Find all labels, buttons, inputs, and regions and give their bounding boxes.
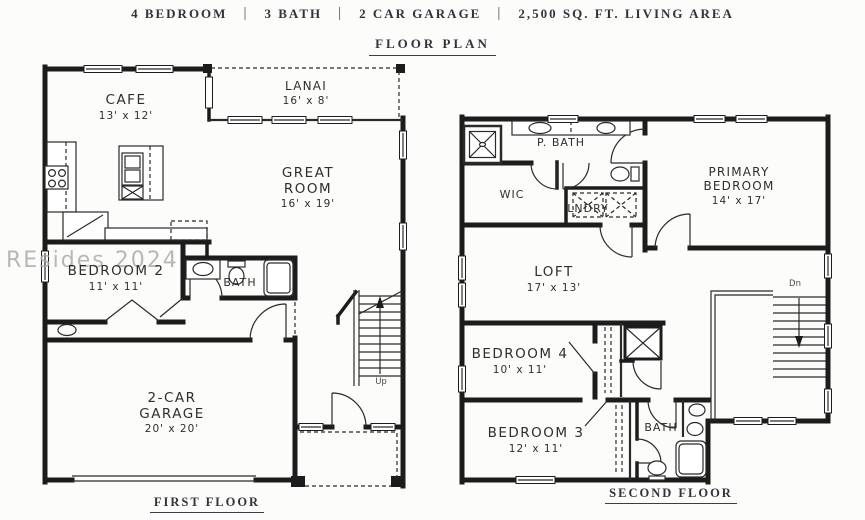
room-name: 2-CAR GARAGE [137, 391, 207, 422]
room-dims: 17' x 13' [527, 282, 581, 294]
second-floor-caption: SECOND FLOOR [596, 486, 746, 504]
room-label-great-room: GREAT ROOM 16' x 19' [276, 166, 340, 210]
first-floor-stairs [354, 290, 402, 386]
room-name: P. BATH [537, 137, 585, 150]
floor-plan-page: 4 BEDROOM | 3 BATH | 2 CAR GARAGE | 2,50… [0, 0, 865, 520]
room-name: LANAI [285, 80, 327, 94]
stairs-dn-label: Dn [785, 280, 805, 290]
room-label-bedroom-2: BEDROOM 2 11' x 11' [61, 264, 171, 293]
room-label-bedroom-3: BEDROOM 3 12' x 11' [481, 426, 591, 455]
room-name: BATH [223, 277, 256, 290]
room-label-garage: 2-CAR GARAGE 20' x 20' [137, 391, 207, 435]
room-name: Up [375, 378, 387, 388]
room-name: GREAT ROOM [276, 166, 340, 197]
room-label-cafe: CAFE 13' x 12' [86, 93, 166, 122]
room-name: BEDROOM 2 [68, 264, 165, 280]
room-name: BEDROOM 4 [472, 347, 569, 363]
room-name: BATH [644, 422, 677, 435]
room-label-laundry: LNDRY [560, 203, 616, 216]
room-label-bedroom-4: BEDROOM 4 10' x 11' [465, 347, 575, 376]
room-label-primary-bedroom: PRIMARY BEDROOM 14' x 17' [696, 166, 782, 207]
room-name: CAFE [106, 93, 147, 109]
room-label-p-bath: P. BATH [521, 137, 601, 150]
room-name: BEDROOM 3 [488, 426, 585, 442]
room-dims: 12' x 11' [509, 443, 563, 455]
room-name: LOFT [534, 265, 573, 281]
room-label-loft: LOFT 17' x 13' [514, 265, 594, 294]
room-name: LNDRY [567, 203, 609, 216]
room-dims: 13' x 12' [99, 110, 153, 122]
room-name: WIC [500, 189, 525, 202]
room-label-bath-2: BATH [639, 422, 683, 435]
room-dims: 14' x 17' [712, 195, 766, 207]
room-label-lanai: LANAI 16' x 8' [256, 80, 356, 107]
caption-text: SECOND FLOOR [605, 486, 737, 504]
second-floor-stairs [711, 291, 826, 421]
caption-text: FIRST FLOOR [150, 495, 264, 513]
room-label-wic: WIC [487, 189, 537, 202]
stairs-up-label: Up [371, 378, 391, 388]
room-dims: 16' x 19' [281, 198, 335, 210]
first-floor-caption: FIRST FLOOR [147, 495, 267, 513]
room-name: Dn [789, 280, 801, 290]
room-dims: 11' x 11' [89, 281, 143, 293]
first-floor-kitchen-fixtures [45, 142, 207, 336]
room-dims: 20' x 20' [145, 423, 199, 435]
room-dims: 16' x 8' [283, 95, 330, 107]
room-dims: 10' x 11' [493, 364, 547, 376]
room-name: PRIMARY BEDROOM [696, 166, 782, 194]
room-label-bath-1: BATH [218, 277, 262, 290]
